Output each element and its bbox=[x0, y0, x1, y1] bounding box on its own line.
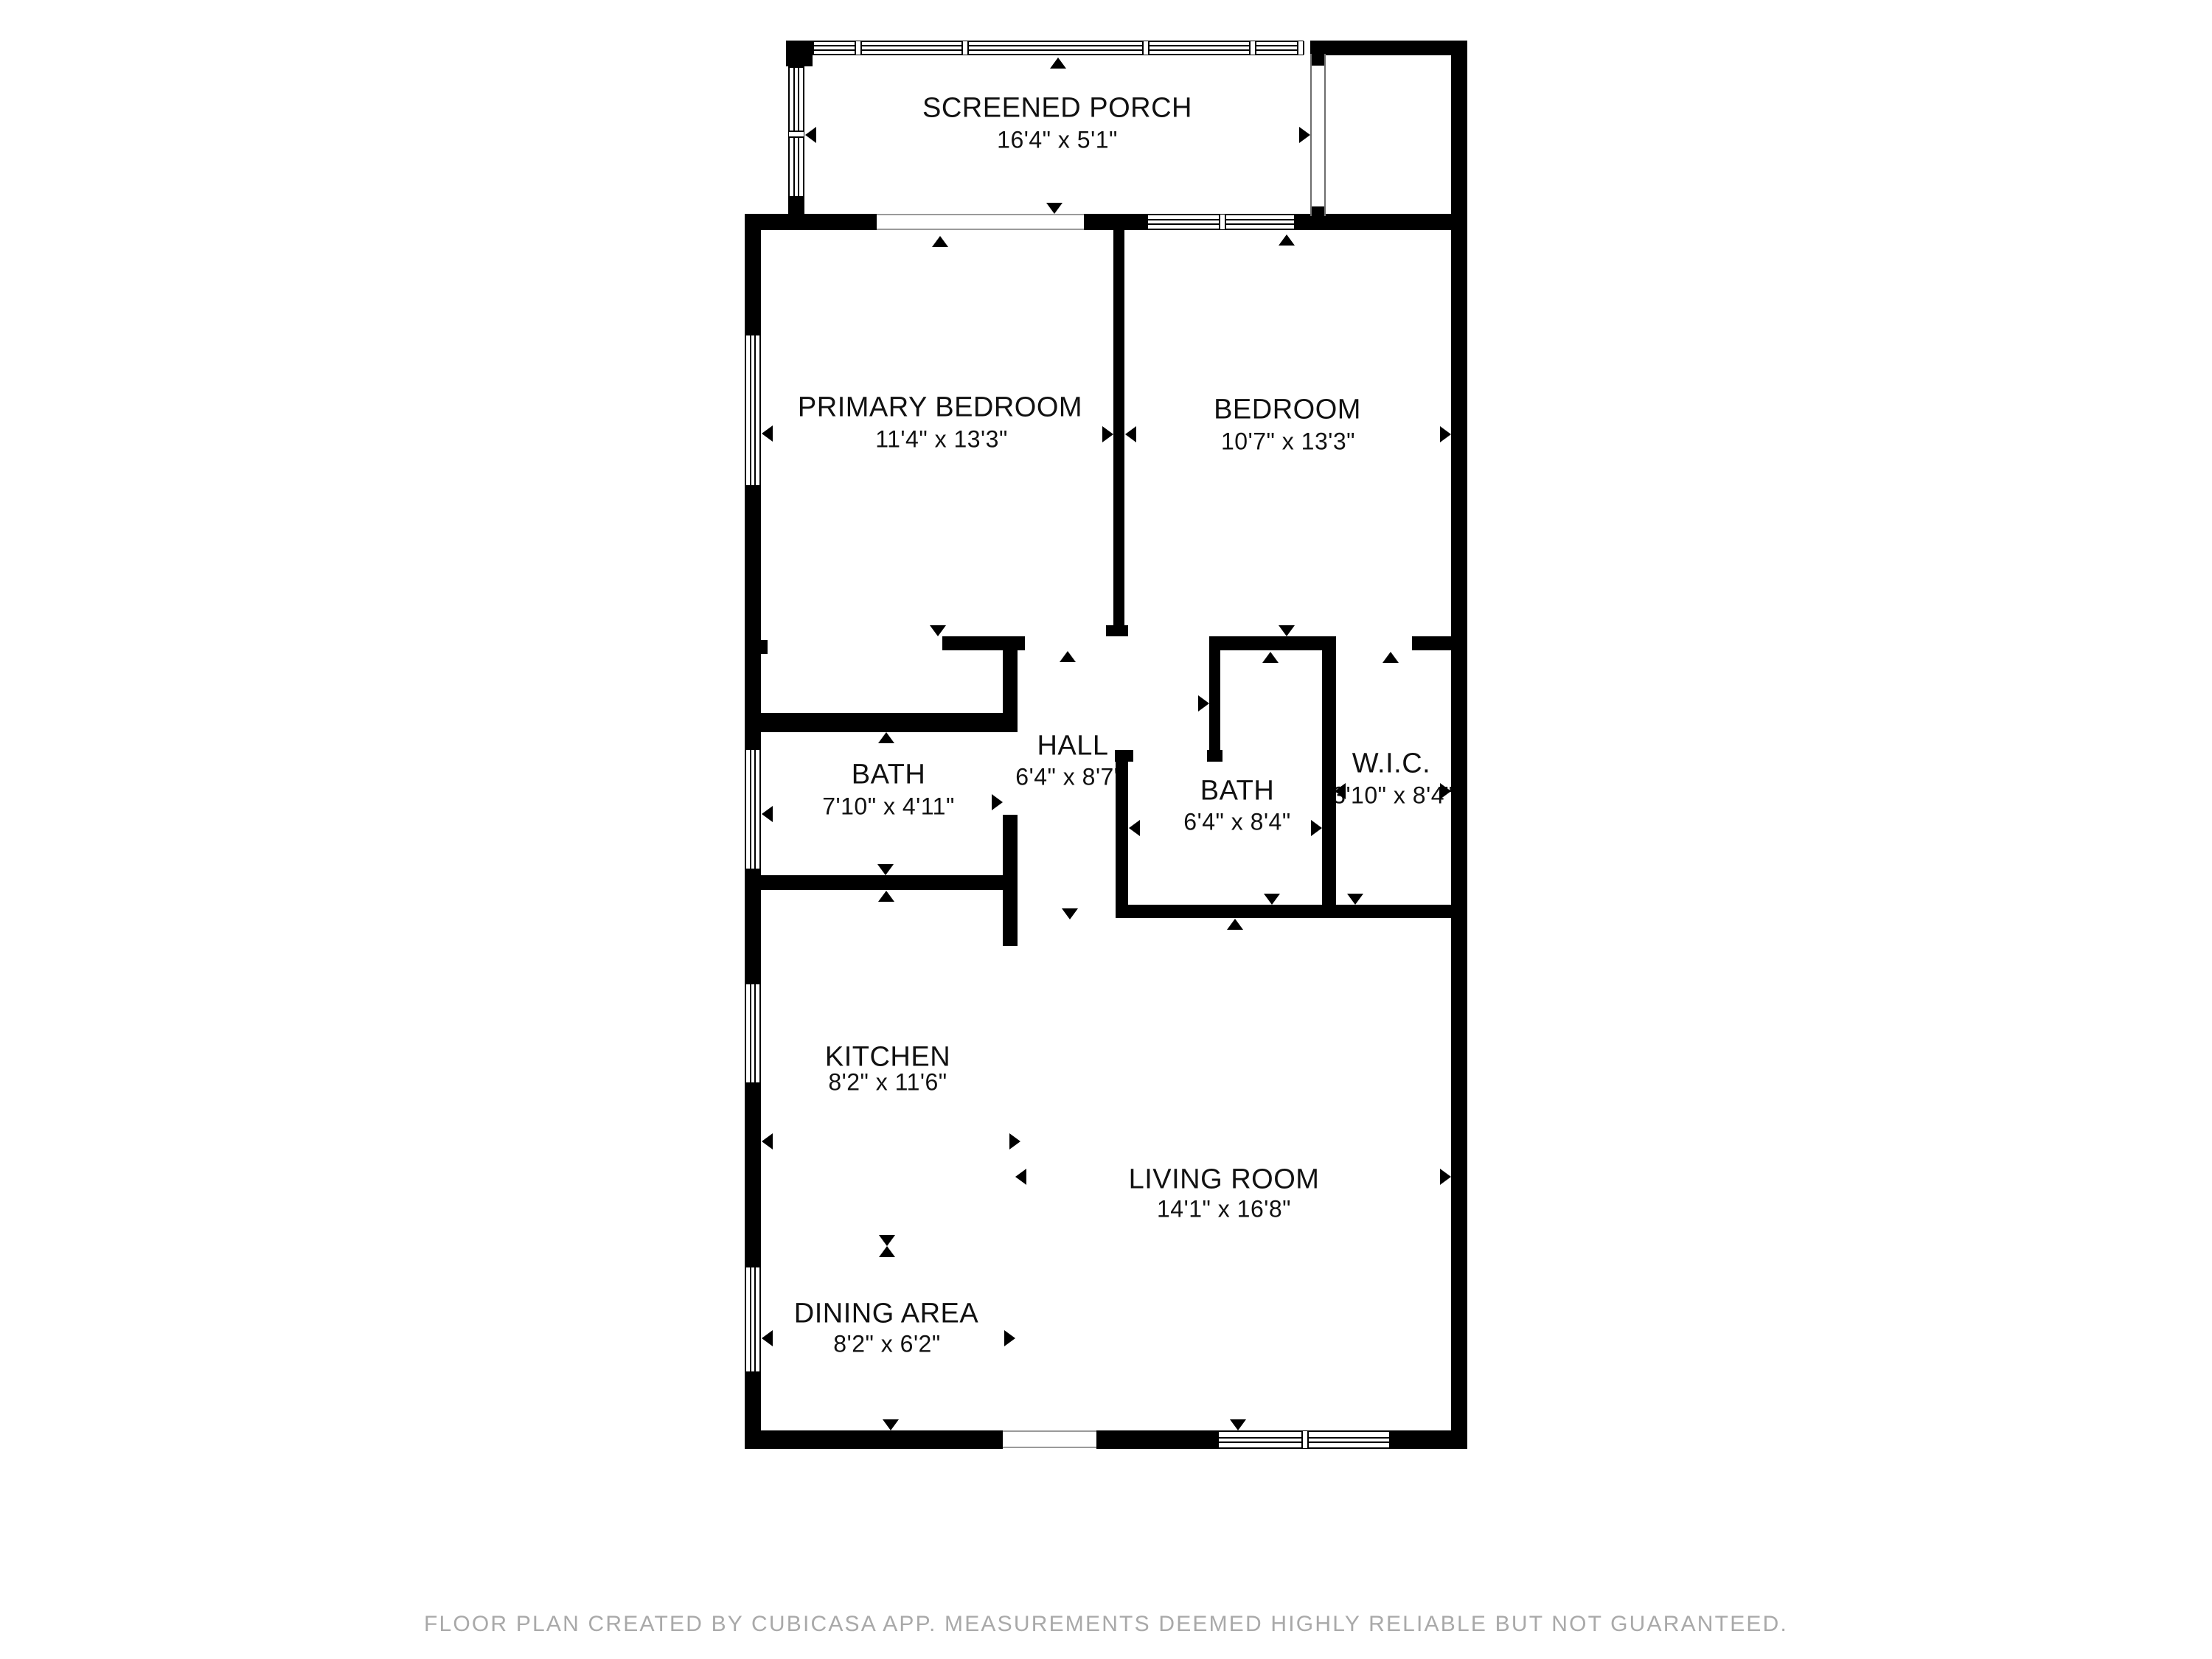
window-mullion bbox=[855, 41, 862, 55]
wall-outer-right bbox=[1451, 41, 1467, 1449]
dimension-arrow-left-primary-bedroom bbox=[762, 425, 773, 442]
room-label-bedroom: BEDROOM bbox=[1214, 394, 1361, 426]
wall-bottom-2 bbox=[1096, 1430, 1217, 1449]
room-dims-screened-porch: 16'4" x 5'1" bbox=[997, 127, 1118, 154]
dimension-arrow-right-bedroom bbox=[1440, 426, 1451, 442]
dimension-arrow-down-kitchen bbox=[879, 1235, 895, 1246]
dimension-arrow-right-bath-2 bbox=[1198, 695, 1209, 712]
door-threshold-entry-door-bottom bbox=[1003, 1447, 1096, 1448]
room-label-dining-area: DINING AREA bbox=[794, 1298, 978, 1330]
dimension-arrow-down-screened-porch bbox=[1046, 203, 1062, 214]
window-win-bath-left bbox=[745, 748, 761, 870]
room-dims-hall: 6'4" x 8'7" bbox=[1015, 764, 1122, 791]
window-mullion bbox=[1301, 1431, 1309, 1448]
window-mullion bbox=[1297, 41, 1304, 55]
wall-w2 bbox=[1322, 650, 1336, 905]
dimension-arrow-right-wic bbox=[1440, 783, 1451, 799]
footer-disclaimer: FLOOR PLAN CREATED BY CUBICASA APP. MEAS… bbox=[0, 1612, 2212, 1637]
wall-wall-b bbox=[1003, 650, 1018, 713]
dimension-arrow-right-bath-1 bbox=[992, 794, 1003, 810]
screen-divider-line bbox=[1324, 54, 1326, 216]
wall-w1 bbox=[1209, 650, 1220, 750]
room-dims-kitchen: 8'2" x 11'6" bbox=[828, 1069, 947, 1096]
dimension-arrow-up-kitchen bbox=[878, 891, 894, 902]
window-glass-line bbox=[750, 335, 756, 485]
dimension-arrow-down-dining-area bbox=[883, 1419, 899, 1430]
dimension-arrow-up-bath-1 bbox=[878, 732, 894, 743]
dimension-arrow-right-living-room bbox=[1440, 1169, 1451, 1185]
room-dims-bedroom: 10'7" x 13'3" bbox=[1221, 428, 1355, 456]
window-mullion bbox=[961, 41, 969, 55]
wall-top-1 bbox=[745, 214, 877, 230]
dimension-arrow-left-bedroom bbox=[1125, 426, 1136, 442]
room-label-living-room: LIVING ROOM bbox=[1129, 1164, 1320, 1196]
wall-wic-top bbox=[1412, 636, 1451, 650]
window-mullion bbox=[1219, 215, 1226, 229]
room-dims-bath-1: 7'10" x 4'11" bbox=[822, 793, 955, 821]
wall-h2 bbox=[1116, 905, 1467, 918]
dimension-arrow-left-wic bbox=[1335, 783, 1346, 799]
window-glass-line bbox=[750, 750, 756, 869]
room-label-bath-1: BATH bbox=[852, 759, 926, 791]
dimension-arrow-left-dining-area bbox=[762, 1330, 773, 1346]
window-mullion bbox=[1249, 41, 1256, 55]
room-dims-primary-bedroom: 11'4" x 13'3" bbox=[875, 426, 1008, 453]
dimension-arrow-up-bath-2 bbox=[1262, 652, 1279, 663]
dimension-arrow-left-bath-1 bbox=[762, 806, 773, 822]
wall-h1 bbox=[1209, 636, 1336, 650]
dimension-arrow-left-living-room bbox=[1015, 1169, 1026, 1185]
dimension-arrow-left-screened-porch bbox=[805, 127, 816, 143]
dimension-arrow-down-bath-1 bbox=[877, 864, 894, 875]
wall-topright-top bbox=[1310, 41, 1467, 55]
room-label-primary-bedroom: PRIMARY BEDROOM bbox=[798, 392, 1082, 424]
dimension-arrow-right-dining-area bbox=[1004, 1330, 1015, 1346]
window-mullion bbox=[1142, 41, 1150, 55]
screen-wall-screen-porch-top bbox=[813, 41, 1304, 55]
room-label-hall: HALL bbox=[1037, 731, 1108, 762]
dimension-arrow-up-screened-porch bbox=[1050, 58, 1066, 69]
wall-porch-corner-tl bbox=[786, 41, 813, 66]
dimension-arrow-up-primary-bedroom bbox=[932, 236, 948, 247]
room-dims-bath-2: 6'4" x 8'4" bbox=[1183, 809, 1290, 836]
dimension-arrow-right-screened-porch bbox=[1299, 127, 1310, 143]
wall-porch-left-cap bbox=[788, 198, 804, 215]
wall-w1-foot bbox=[1207, 750, 1222, 762]
dimension-arrow-down-bath-2 bbox=[1264, 894, 1280, 905]
wall-bedroom-divider-foot bbox=[1106, 625, 1128, 636]
screen-divider-line bbox=[1310, 54, 1312, 216]
door-threshold-porch-door-top bbox=[877, 214, 1084, 215]
dimension-arrow-right-bath-2 bbox=[1311, 820, 1322, 836]
room-dims-dining-area: 8'2" x 6'2" bbox=[833, 1331, 940, 1358]
wall-bath1-top bbox=[745, 713, 1018, 732]
dimension-arrow-right-kitchen bbox=[1009, 1133, 1020, 1150]
wall-bath1-bottom bbox=[745, 875, 1018, 890]
wall-w0 bbox=[1116, 762, 1128, 905]
dimension-arrow-down-bedroom bbox=[1279, 625, 1295, 636]
dimension-arrow-down-living-room bbox=[1230, 1419, 1246, 1430]
dimension-arrow-down-primary-bedroom bbox=[930, 625, 946, 636]
window-glass-line bbox=[750, 984, 756, 1082]
window-mullion bbox=[789, 131, 804, 138]
room-dims-wic: 3'10" x 8'4" bbox=[1332, 782, 1453, 810]
room-dims-living-room: 14'1" x 16'8" bbox=[1157, 1196, 1291, 1223]
dimension-arrow-up-hall bbox=[1060, 651, 1076, 662]
window-win-bedroom-left bbox=[745, 334, 761, 487]
window-win-bedroom-top bbox=[1147, 214, 1295, 230]
dimension-arrow-up-wic bbox=[1382, 652, 1399, 663]
dimension-arrow-up-living-room bbox=[1227, 919, 1243, 930]
window-win-living-bottom bbox=[1217, 1430, 1391, 1449]
dimension-arrow-left-kitchen bbox=[762, 1133, 773, 1150]
wall-porch-divider-cap-b bbox=[1310, 206, 1326, 230]
door-threshold-entry-door-top bbox=[1003, 1430, 1096, 1432]
wall-wall-a bbox=[942, 636, 1025, 650]
dimension-arrow-left-bath-2 bbox=[1129, 820, 1140, 836]
window-win-dining-left bbox=[745, 1266, 761, 1373]
window-glass-line bbox=[814, 45, 1302, 51]
dimension-arrow-up-dining-area bbox=[879, 1246, 895, 1257]
dimension-arrow-right-primary-bedroom bbox=[1102, 426, 1113, 442]
door-threshold-porch-door-bottom bbox=[877, 229, 1084, 230]
wall-top-2 bbox=[1084, 214, 1147, 230]
dimension-arrow-down-hall bbox=[1062, 908, 1078, 919]
dimension-arrow-up-bedroom bbox=[1279, 234, 1295, 246]
wall-left-stub bbox=[761, 640, 768, 654]
wall-porch-divider-cap-t bbox=[1310, 54, 1326, 66]
wall-bottom-1 bbox=[745, 1430, 1003, 1449]
window-win-kitchen-left bbox=[745, 983, 761, 1084]
room-label-bath-2: BATH bbox=[1200, 776, 1275, 807]
wall-w0-cap bbox=[1115, 750, 1133, 762]
floor-plan: FLOOR PLAN CREATED BY CUBICASA APP. MEAS… bbox=[0, 0, 2212, 1659]
screen-wall-screen-porch-left bbox=[788, 66, 804, 198]
wall-bottom-3 bbox=[1391, 1430, 1467, 1449]
room-label-wic: W.I.C. bbox=[1352, 748, 1430, 780]
dimension-arrow-down-wic bbox=[1347, 894, 1363, 905]
room-label-screened-porch: SCREENED PORCH bbox=[922, 93, 1192, 125]
window-glass-line bbox=[750, 1267, 756, 1371]
wall-bedroom-divider bbox=[1113, 230, 1124, 625]
